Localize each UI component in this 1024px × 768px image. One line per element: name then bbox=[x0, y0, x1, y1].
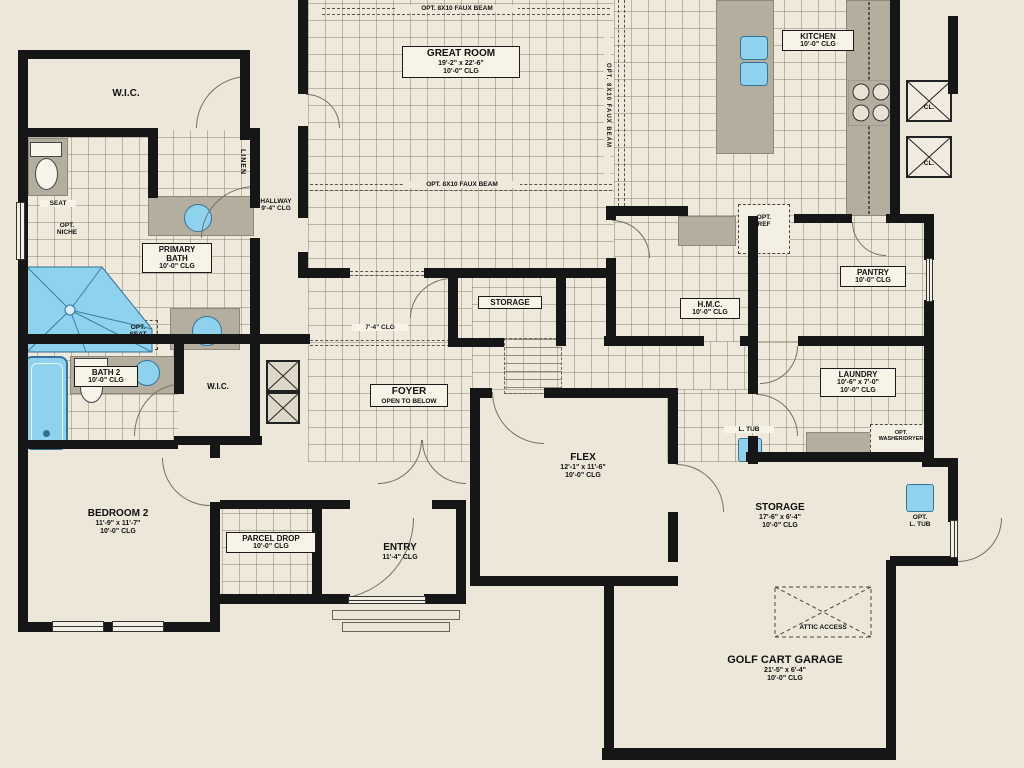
room-label-flex: FLEX 12'-1" x 11'-6" 10'-0" CLG bbox=[538, 452, 628, 480]
room-clg: 10'-0" CLG bbox=[683, 309, 737, 317]
soffit-line bbox=[310, 340, 450, 346]
wall bbox=[794, 214, 852, 223]
opt-seat-label: OPT. SEAT bbox=[119, 324, 157, 338]
room-name: PARCEL DROP bbox=[229, 534, 313, 543]
room-note: OPEN TO BELOW bbox=[373, 398, 445, 405]
wall bbox=[452, 268, 564, 278]
door-arc-bedroom2 bbox=[162, 458, 210, 506]
room-clg: 9'-4" CLG bbox=[250, 205, 302, 212]
wall bbox=[18, 440, 178, 449]
wall bbox=[18, 128, 158, 137]
room-dim: 17'-6" x 6'-4" bbox=[730, 514, 830, 522]
cooktop bbox=[848, 80, 894, 126]
room-clg: 10'-0" CLG bbox=[700, 675, 870, 683]
cased-opening bbox=[350, 271, 424, 276]
opt-washer-dryer-label: OPT. WASHER/DRYER bbox=[872, 430, 930, 442]
room-name: STORAGE bbox=[730, 502, 830, 514]
room-label-pantry: PANTRY 10'-0" CLG bbox=[840, 266, 906, 287]
wall bbox=[220, 500, 320, 509]
wall bbox=[924, 214, 934, 260]
seat-label: SEAT bbox=[40, 200, 76, 207]
opt-wd-line2: WASHER/DRYER bbox=[872, 436, 930, 442]
room-name: FOYER bbox=[373, 386, 445, 398]
wall bbox=[610, 206, 688, 216]
room-label-primary-bath: PRIMARY BATH 10'-0" CLG bbox=[142, 243, 212, 273]
room-dim: 10'-6" x 7'-0" bbox=[823, 379, 893, 387]
opt-niche-line1: OPT. bbox=[44, 222, 90, 229]
room-label-parcel-drop: PARCEL DROP 10'-0" CLG bbox=[226, 532, 316, 553]
room-dim: 19'-2" x 22'-6" bbox=[405, 60, 517, 68]
faux-beam-line-side bbox=[618, 0, 625, 206]
wall bbox=[18, 334, 310, 344]
opt-seat-line1: OPT. bbox=[119, 324, 157, 331]
room-name: STORAGE bbox=[481, 298, 539, 307]
room-clg: 10'-0" CLG bbox=[538, 472, 628, 480]
great-room-floor bbox=[308, 0, 614, 276]
wall bbox=[470, 388, 480, 586]
chase-box-2 bbox=[906, 136, 952, 178]
wall bbox=[174, 344, 184, 394]
wall bbox=[602, 748, 896, 760]
room-label-laundry: LAUNDRY 10'-6" x 7'-0" 10'-0" CLG bbox=[820, 368, 896, 397]
room-name: BATH 2 bbox=[77, 368, 135, 377]
wall bbox=[210, 502, 220, 632]
opt-ltub-line1: OPT. bbox=[894, 514, 946, 521]
room-clg: 10'-0" CLG bbox=[785, 41, 851, 49]
chase-label-2: CL. bbox=[914, 160, 944, 167]
wall bbox=[668, 512, 678, 562]
window bbox=[112, 621, 164, 632]
wall bbox=[604, 584, 614, 750]
room-clg: 10'-0" CLG bbox=[843, 277, 903, 285]
bathtub bbox=[24, 356, 68, 450]
room-clg: 10'-0" CLG bbox=[77, 377, 135, 385]
wall bbox=[604, 336, 704, 346]
room-label-storage-garage: STORAGE 17'-6" x 6'-4" 10'-0" CLG bbox=[730, 502, 830, 530]
wall bbox=[250, 128, 260, 208]
wall bbox=[890, 0, 900, 214]
room-label-bedroom2: BEDROOM 2 11'-9" x 11'-7" 10'-0" CLG bbox=[58, 508, 178, 536]
opt-seat-line2: SEAT bbox=[119, 331, 157, 338]
faux-beam-label-top: OPT. 8X10 FAUX BEAM bbox=[396, 5, 518, 12]
opt-laundry-tub-label: OPT. L. TUB bbox=[894, 514, 946, 528]
foyer-column-1 bbox=[266, 360, 300, 392]
room-dim: 12'-1" x 11'-6" bbox=[538, 464, 628, 472]
door-arc-storage bbox=[676, 464, 724, 512]
porch-step-1 bbox=[332, 610, 460, 620]
wall bbox=[18, 50, 250, 59]
room-dim: 21'-5" x 6'-4" bbox=[700, 667, 870, 675]
linen-label: LINEN bbox=[238, 134, 246, 190]
room-label-foyer: FOYER OPEN TO BELOW bbox=[370, 384, 448, 407]
opt-ref-line1: OPT. bbox=[740, 214, 788, 221]
room-label-bath2: BATH 2 10'-0" CLG bbox=[74, 366, 138, 387]
door-arc-foyer-left bbox=[378, 440, 422, 484]
room-name: BEDROOM 2 bbox=[58, 508, 178, 520]
room-name: FLEX bbox=[538, 452, 628, 464]
toilet-bowl-primary bbox=[35, 158, 58, 190]
room-name: PRIMARY bbox=[145, 245, 209, 254]
room-clg: 10'-0" CLG bbox=[405, 68, 517, 76]
wall bbox=[748, 344, 758, 394]
room-label-entry: ENTRY 11'-4" CLG bbox=[368, 542, 432, 562]
opt-ltub-line2: L. TUB bbox=[894, 521, 946, 528]
window bbox=[926, 258, 933, 302]
stairs bbox=[504, 338, 562, 394]
room-name: LAUNDRY bbox=[823, 370, 893, 379]
wall bbox=[220, 594, 322, 604]
opt-niche-line2: NICHE bbox=[44, 229, 90, 236]
foyer-column-2 bbox=[266, 392, 300, 424]
room-dim: 11'-9" x 11'-7" bbox=[58, 520, 178, 528]
wall bbox=[308, 268, 350, 278]
window bbox=[52, 621, 104, 632]
wall bbox=[470, 576, 678, 586]
wall bbox=[544, 388, 678, 398]
room-name: HALLWAY bbox=[250, 198, 302, 205]
chase-box-1 bbox=[906, 80, 952, 122]
room-clg: 10'-0" CLG bbox=[145, 263, 209, 271]
wall bbox=[298, 0, 308, 94]
room-name: W.I.C. bbox=[190, 382, 246, 391]
wall bbox=[456, 500, 466, 604]
faux-beam-label-mid: OPT. 8X10 FAUX BEAM bbox=[404, 181, 520, 188]
room-clg: 10'-0" CLG bbox=[229, 543, 313, 551]
room-name: KITCHEN bbox=[785, 32, 851, 41]
window bbox=[16, 202, 25, 260]
side-door-opening bbox=[950, 520, 958, 558]
room-label-golf-cart-garage: GOLF CART GARAGE 21'-5" x 6'-4" 10'-0" C… bbox=[700, 654, 870, 683]
room-name-2: BATH bbox=[145, 254, 209, 263]
porch-step-2 bbox=[342, 622, 450, 632]
attic-access-label: ATTIC ACCESS bbox=[786, 624, 860, 631]
wall bbox=[886, 560, 896, 756]
wall bbox=[250, 238, 260, 342]
room-clg: 11'-4" CLG bbox=[368, 554, 432, 562]
wall bbox=[748, 216, 758, 344]
room-name: PANTRY bbox=[843, 268, 903, 277]
room-label-hallway: HALLWAY 9'-4" CLG bbox=[250, 198, 302, 212]
wall bbox=[322, 500, 350, 509]
door-arc-foyer-right bbox=[422, 440, 466, 484]
room-name: H.M.C. bbox=[683, 300, 737, 309]
wall bbox=[556, 268, 566, 346]
bathtub-drain bbox=[43, 430, 50, 437]
room-clg: 10'-0" CLG bbox=[58, 528, 178, 536]
laundry-tub-label: L. TUB bbox=[724, 426, 774, 433]
room-label-storage-hall: STORAGE bbox=[478, 296, 542, 309]
room-name: W.I.C. bbox=[96, 88, 156, 100]
room-name: GOLF CART GARAGE bbox=[700, 654, 870, 667]
room-label-wic2: W.I.C. bbox=[190, 382, 246, 391]
room-name: GREAT ROOM bbox=[405, 48, 517, 60]
room-label-hmc: H.M.C. 10'-0" CLG bbox=[680, 298, 740, 319]
wall bbox=[250, 344, 260, 442]
butlers-counter bbox=[678, 216, 736, 246]
opt-ref-label: OPT. REF bbox=[740, 214, 788, 228]
opt-laundry-tub bbox=[906, 484, 934, 512]
wall bbox=[606, 258, 616, 344]
wall bbox=[448, 338, 504, 347]
room-label-wic1: W.I.C. bbox=[96, 88, 156, 100]
wall bbox=[668, 388, 678, 464]
room-name: ENTRY bbox=[368, 542, 432, 554]
faux-beam-label-side: OPT. 8X10 FAUX BEAM bbox=[604, 36, 611, 176]
door-arc-flex bbox=[492, 392, 544, 444]
soffit-clg-label: 7'-4" CLG bbox=[352, 324, 408, 331]
island-sink-1 bbox=[740, 36, 768, 60]
wall bbox=[746, 452, 932, 462]
wall bbox=[890, 556, 958, 566]
floor-plan: GREAT ROOM 19'-2" x 22'-6" 10'-0" CLG KI… bbox=[0, 0, 1024, 768]
wall bbox=[948, 458, 958, 522]
opt-ref-line2: REF bbox=[740, 221, 788, 228]
wall bbox=[424, 594, 466, 604]
wall bbox=[298, 252, 308, 278]
wall bbox=[322, 594, 350, 604]
opt-ref-box bbox=[738, 204, 790, 254]
toilet-tank-primary bbox=[30, 142, 62, 157]
chase-label-1: CL. bbox=[914, 104, 944, 111]
island-sink-2 bbox=[740, 62, 768, 86]
wall bbox=[448, 268, 458, 346]
opt-niche-label: OPT. NICHE bbox=[44, 222, 90, 236]
wall bbox=[606, 206, 616, 220]
room-label-kitchen: KITCHEN 10'-0" CLG bbox=[782, 30, 854, 51]
door-arc-exterior-side bbox=[958, 518, 1002, 562]
room-clg: 10'-0" CLG bbox=[730, 522, 830, 530]
room-label-great-room: GREAT ROOM 19'-2" x 22'-6" 10'-0" CLG bbox=[402, 46, 520, 78]
wall bbox=[948, 16, 958, 94]
wall bbox=[240, 50, 250, 140]
room-clg: 10'-0" CLG bbox=[823, 387, 893, 395]
wall bbox=[148, 128, 158, 198]
entry-door bbox=[348, 596, 426, 604]
wall bbox=[210, 440, 220, 458]
wall bbox=[798, 336, 932, 346]
